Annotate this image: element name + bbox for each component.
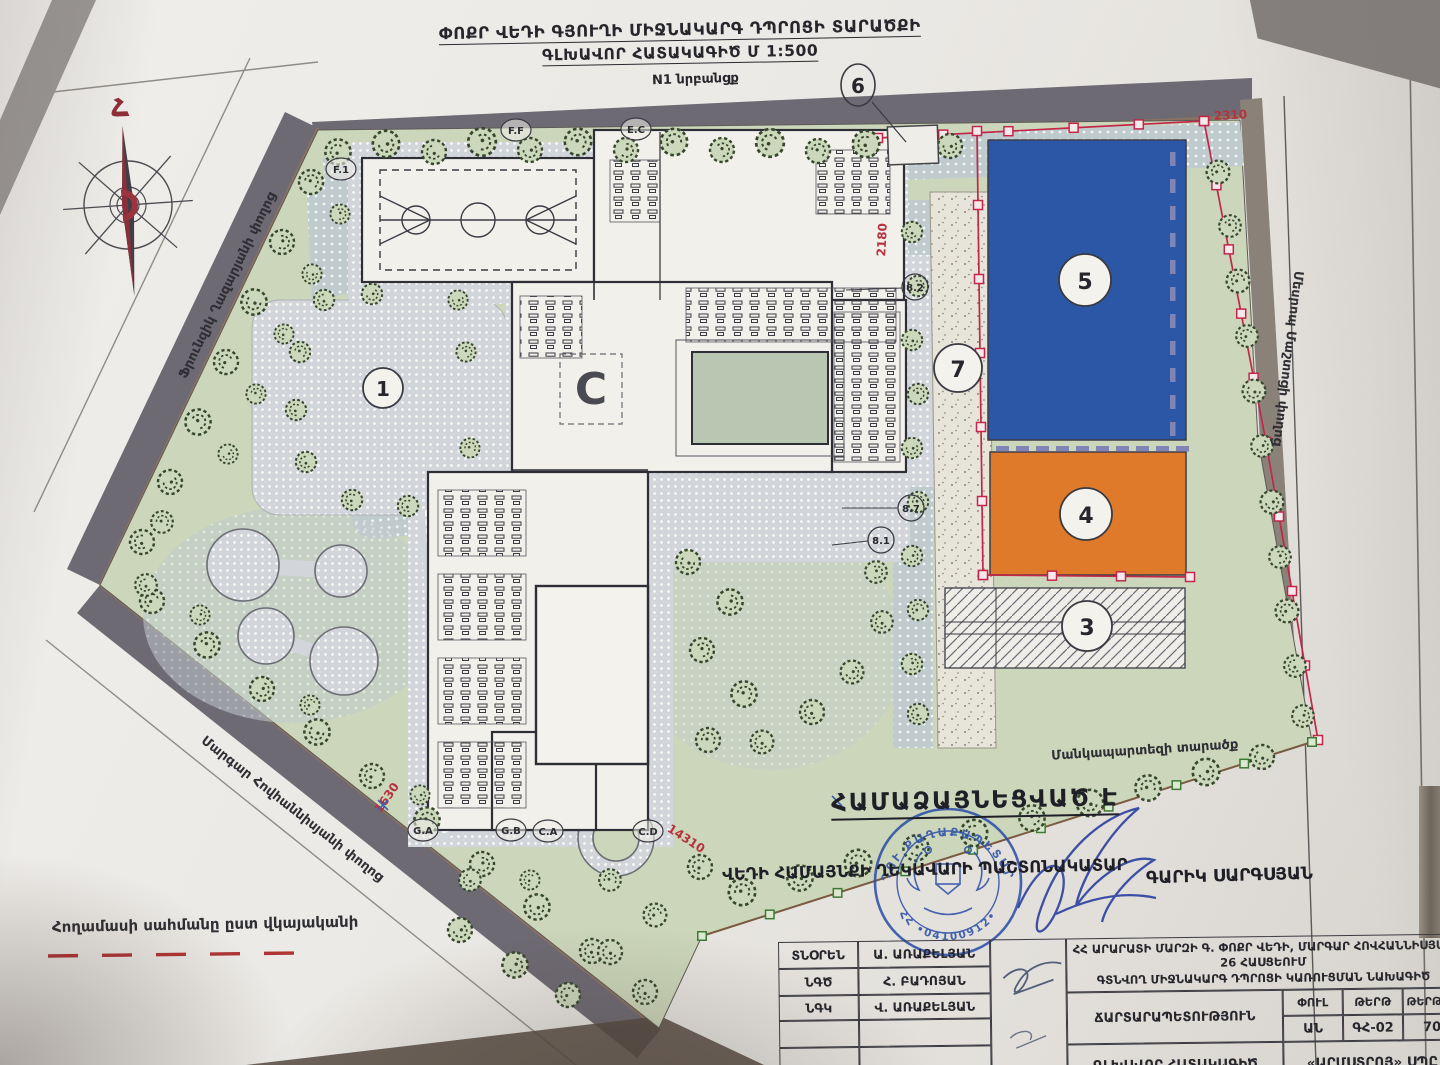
phase-value: ԱՆ (1283, 1015, 1343, 1042)
sheet-label: ԹԵՐԹ (1343, 988, 1403, 1015)
legend: Հողամասի սահմանը ըստ վկայականի (48, 913, 358, 956)
role-empty2 (779, 1047, 860, 1065)
project-description: ՀՀ ԱՐԱՐԱՏԻ ՄԱՐԶԻ Գ. ՓՈՔՐ ՎԵԴԻ, ՄԱՐԳԱՐ ՀՈ… (1066, 934, 1440, 993)
table-signatures (991, 939, 1069, 1065)
north-letter: Հ (105, 92, 133, 127)
svg-text:8.7: 8.7 (902, 504, 920, 515)
role-empty1 (779, 1020, 859, 1048)
name-empty2 (859, 1045, 992, 1065)
svg-text:6: 6 (851, 74, 865, 98)
role-ngk: ՆԳԿ (779, 995, 859, 1021)
svg-text:2310: 2310 (1213, 107, 1247, 123)
site-plan-photo: C 1 5 4 3 7 (0, 0, 1440, 1065)
svg-text:3: 3 (1079, 616, 1094, 641)
name-ngk: Վ. ԱՌԱՔԵԼՅԱՆ (859, 993, 991, 1020)
svg-text:F.F: F.F (508, 126, 524, 137)
svg-text:E.C: E.C (627, 125, 645, 136)
sheets-label: ԹԵՐԹԵՐ (1403, 988, 1440, 1015)
callout-3: 3 (1062, 601, 1112, 651)
svg-text:2180: 2180 (874, 223, 890, 257)
role-ngc: ՆԳԾ (778, 968, 858, 996)
svg-text:G.B: G.B (501, 826, 521, 837)
svg-text:Հողամասի սահմանը ըստ վկայականի: Հողամասի սահմանը ըստ վկայականի (52, 913, 359, 936)
svg-text:1: 1 (376, 377, 390, 401)
signatures-column (990, 938, 1068, 1065)
svg-text:G.A: G.A (413, 826, 433, 837)
callout-1: 1 (363, 368, 403, 408)
name-empty1 (859, 1018, 991, 1047)
svg-text:F.1: F.1 (333, 165, 349, 176)
svg-text:C.D: C.D (638, 827, 657, 838)
svg-text:4: 4 (1078, 504, 1093, 529)
title-block: ՏՆՕՐԵՆ ՆԳԾ ՆԳԿ Ա. ԱՌԱՔԵԼՅԱՆ Հ. ԲԱԴՈՅԱՆ Վ… (778, 934, 1440, 1065)
phase-label: ՓՈՒԼ (1283, 989, 1343, 1016)
discipline-cell: ՃԱՐՏԱՐԱՊԵՏՈՒԹՅՈՒՆ (1067, 990, 1284, 1045)
street-label-n1: N1 նրբանցք (652, 71, 739, 88)
name-ngc: Հ. ԲԱԴՈՅԱՆ (858, 966, 990, 995)
svg-text:C.A: C.A (539, 827, 558, 838)
sheet-value: ԳՀ-02 (1343, 1014, 1403, 1041)
name-director: Ա. ԱՌԱՔԵԼՅԱՆ (858, 939, 990, 968)
master-plan-drawing: C 1 5 4 3 7 (0, 0, 1440, 1065)
svg-text:8.2: 8.2 (906, 283, 924, 294)
sheets-value: 70 (1403, 1014, 1440, 1041)
callout-4: 4 (1060, 488, 1112, 540)
drawing-name-cell: ԳԼԽԱՎՈՐ ՀԱՏԱԿԱԳԻԾ (1067, 1042, 1284, 1065)
svg-text:7: 7 (950, 358, 965, 383)
building-logo: C (575, 364, 607, 415)
svg-text:8.1: 8.1 (872, 536, 890, 547)
svg-text:5: 5 (1077, 270, 1092, 295)
callout-7: 7 (934, 344, 982, 392)
callout-5: 5 (1059, 254, 1111, 306)
table-object (1419, 786, 1440, 938)
role-director: ՏՆՕՐԵՆ (778, 941, 858, 969)
compass-rose: Հ (55, 87, 199, 300)
company-cell: «ԱՐՄՍՏՐՈՅ» ՍՊԸ (1283, 1040, 1440, 1065)
